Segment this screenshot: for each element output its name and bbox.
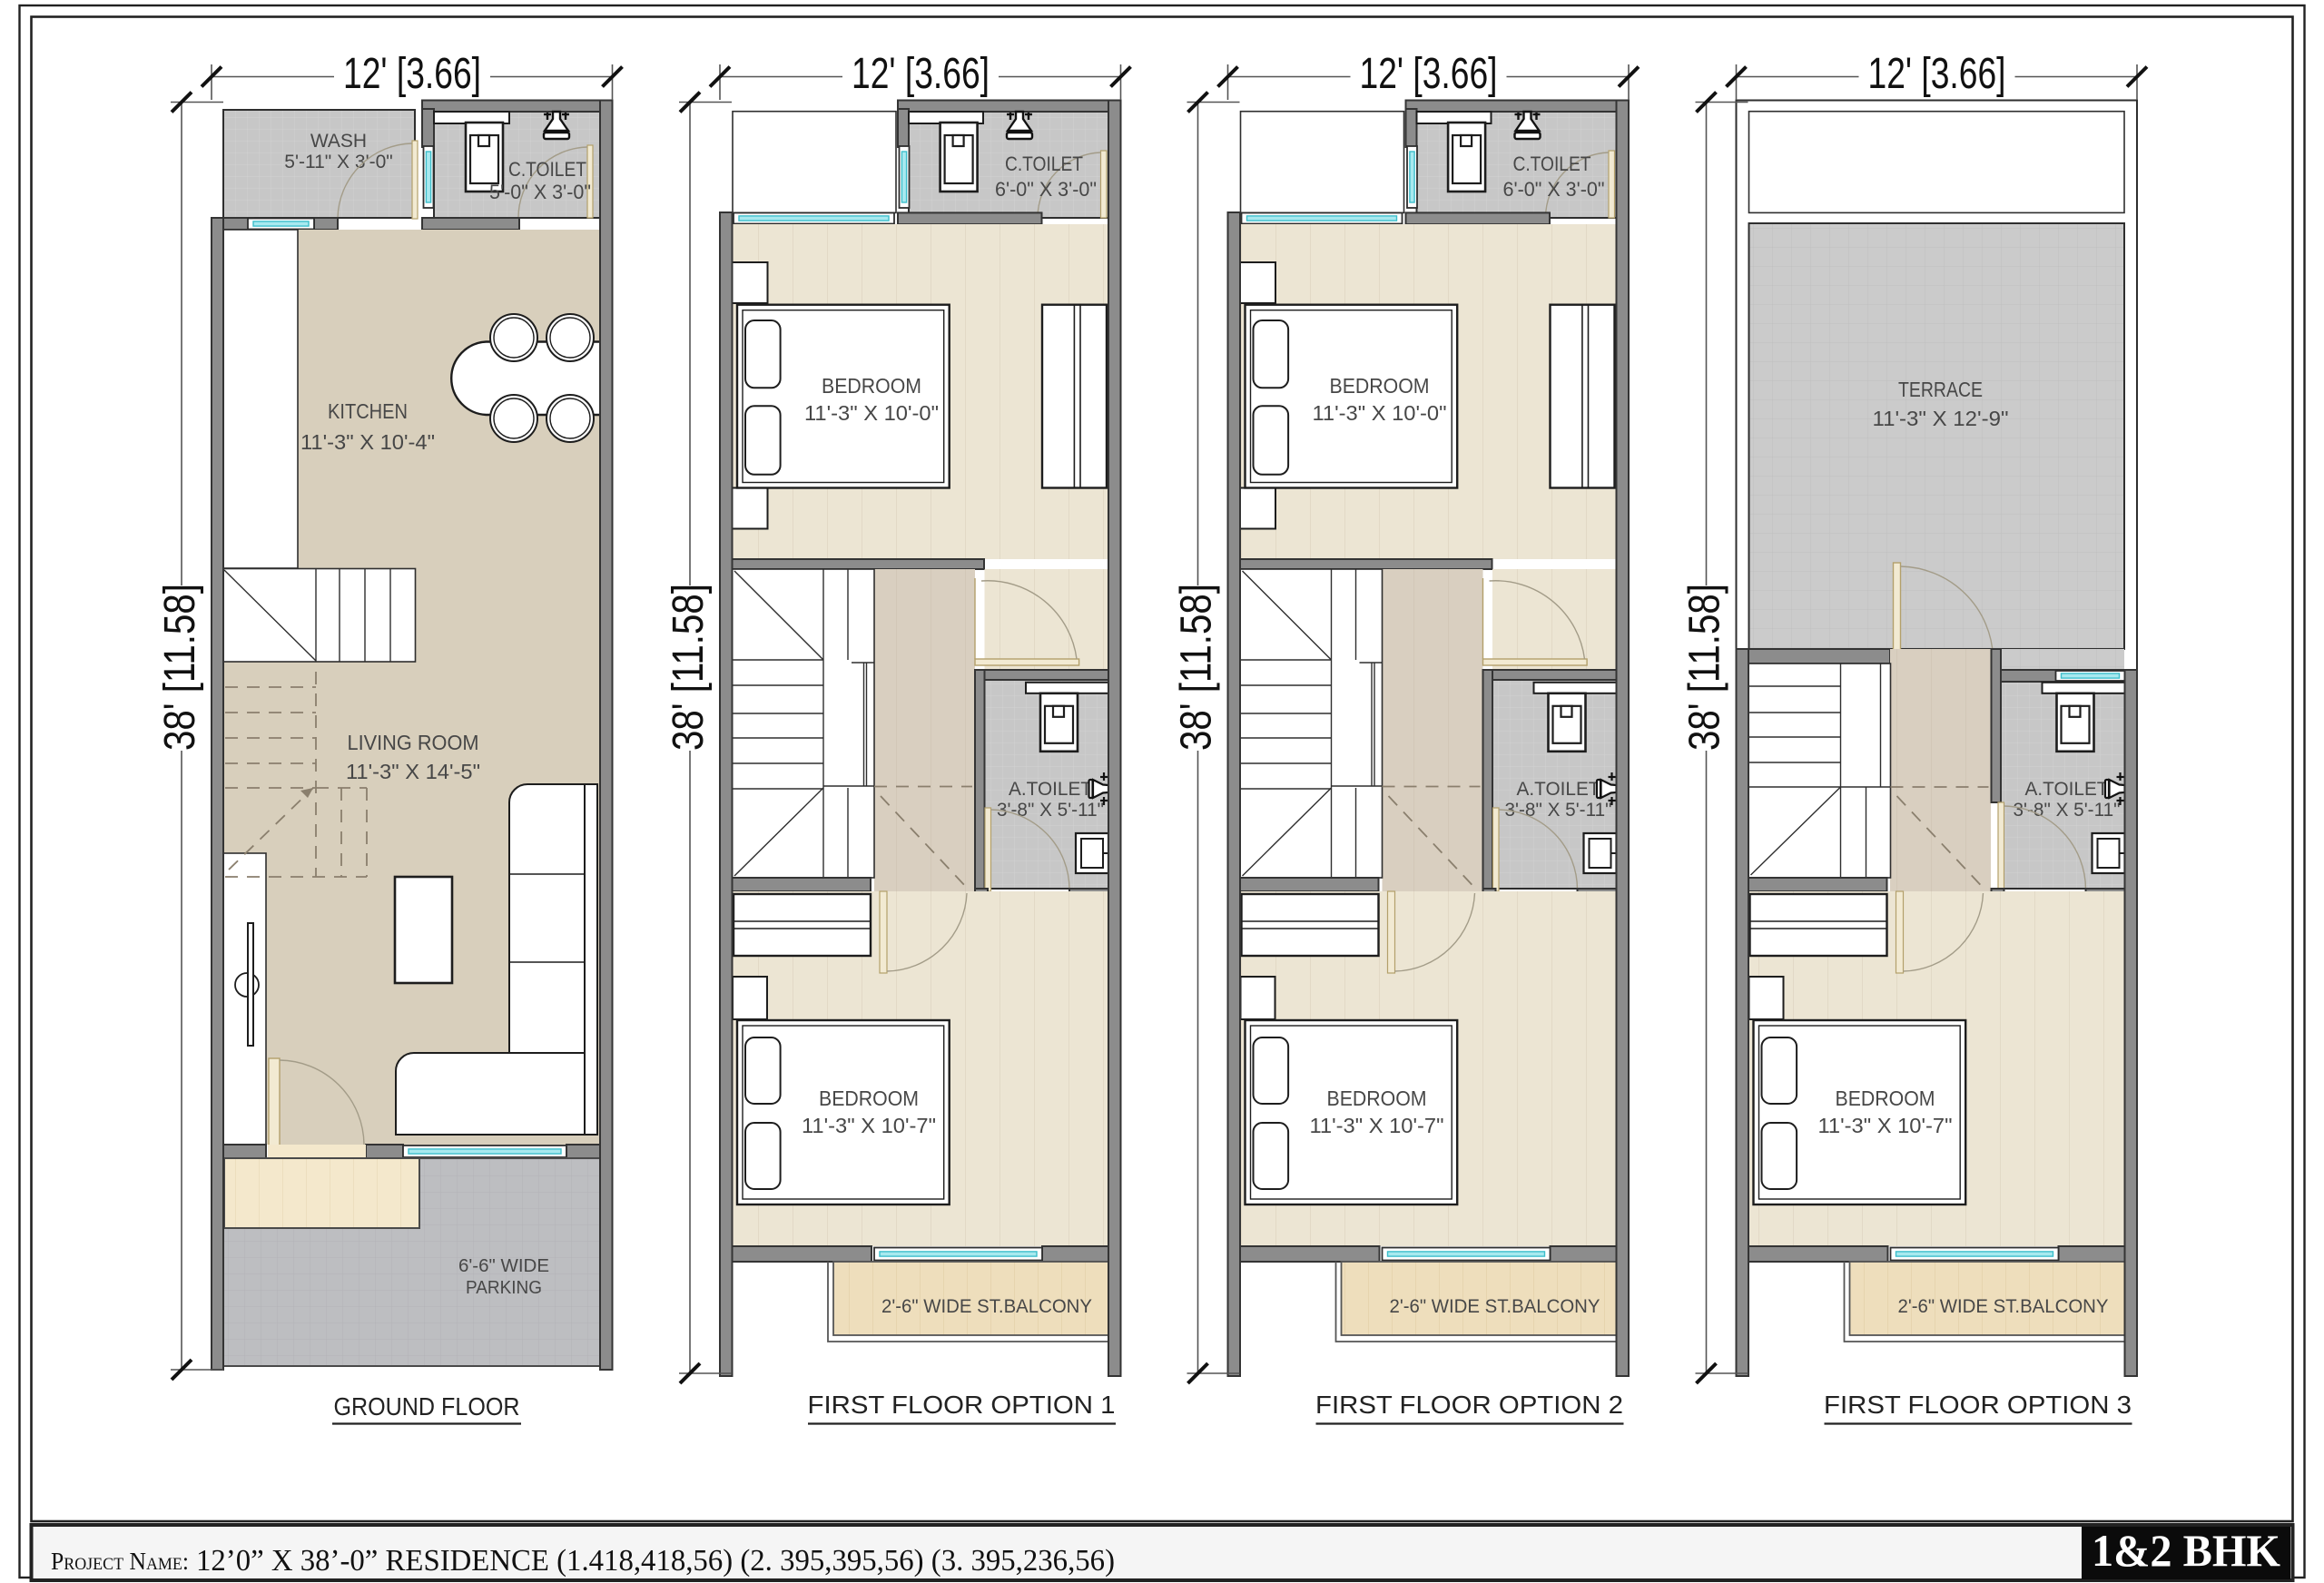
svg-text:11'-3" X 10'-7": 11'-3" X 10'-7"	[1818, 1114, 1953, 1137]
svg-text:Project Name:: Project Name:	[51, 1548, 189, 1575]
svg-text:3'-8" X 5'-11": 3'-8" X 5'-11"	[997, 800, 1104, 821]
svg-text:11'-3" X 10'-0": 11'-3" X 10'-0"	[804, 401, 939, 425]
svg-text:38' [11.58]: 38' [11.58]	[1173, 584, 1221, 751]
svg-text:BEDROOM: BEDROOM	[822, 374, 921, 398]
svg-text:1&2 BHK: 1&2 BHK	[2092, 1525, 2280, 1576]
svg-text:5'-11" X 3'-0": 5'-11" X 3'-0"	[284, 152, 392, 172]
svg-text:TERRACE: TERRACE	[1898, 378, 1983, 401]
svg-text:11'-3" X 10'-0": 11'-3" X 10'-0"	[1313, 401, 1447, 425]
svg-text:BEDROOM: BEDROOM	[1327, 1086, 1427, 1110]
svg-text:12' [3.66]: 12' [3.66]	[852, 50, 990, 98]
svg-text:38' [11.58]: 38' [11.58]	[156, 584, 204, 751]
svg-text:C.TOILET: C.TOILET	[1513, 152, 1591, 175]
svg-text:12' [3.66]: 12' [3.66]	[1868, 50, 2006, 98]
svg-text:38' [11.58]: 38' [11.58]	[665, 584, 713, 751]
svg-text:C.TOILET: C.TOILET	[508, 158, 586, 181]
svg-text:FIRST FLOOR OPTION 1: FIRST FLOOR OPTION 1	[808, 1391, 1116, 1419]
svg-text:FIRST FLOOR OPTION 3: FIRST FLOOR OPTION 3	[1824, 1391, 2132, 1419]
svg-text:5'-0" X 3'-0": 5'-0" X 3'-0"	[489, 181, 591, 203]
svg-text:A.TOILET: A.TOILET	[1009, 779, 1092, 800]
svg-text:BEDROOM: BEDROOM	[1836, 1086, 1935, 1110]
svg-text:FIRST FLOOR OPTION 2: FIRST FLOOR OPTION 2	[1315, 1391, 1623, 1419]
svg-text:LIVING ROOM: LIVING ROOM	[348, 731, 479, 754]
svg-text:A.TOILET: A.TOILET	[2025, 779, 2109, 800]
svg-text:12' [3.66]: 12' [3.66]	[343, 50, 481, 98]
svg-text:11'-3" X 10'-4": 11'-3" X 10'-4"	[300, 430, 435, 454]
svg-text:GROUND FLOOR: GROUND FLOOR	[334, 1392, 520, 1421]
svg-text:2'-6" WIDE ST.BALCONY: 2'-6" WIDE ST.BALCONY	[881, 1295, 1092, 1317]
svg-text:BEDROOM: BEDROOM	[819, 1086, 919, 1110]
svg-text:11'-3" X 10'-7": 11'-3" X 10'-7"	[1310, 1114, 1444, 1137]
svg-text:C.TOILET: C.TOILET	[1005, 152, 1083, 175]
svg-text:6'-6" WIDE: 6'-6" WIDE	[458, 1256, 549, 1276]
svg-text:A.TOILET: A.TOILET	[1517, 779, 1600, 800]
svg-text:2'-6" WIDE ST.BALCONY: 2'-6" WIDE ST.BALCONY	[1390, 1295, 1600, 1317]
svg-text:12’0” X 38’-0” RESIDENCE (1.41: 12’0” X 38’-0” RESIDENCE (1.418,418,56) …	[196, 1544, 1115, 1578]
svg-text:38' [11.58]: 38' [11.58]	[1681, 584, 1729, 751]
svg-text:2'-6" WIDE ST.BALCONY: 2'-6" WIDE ST.BALCONY	[1898, 1295, 2109, 1317]
svg-text:KITCHEN: KITCHEN	[328, 399, 408, 423]
svg-text:PARKING: PARKING	[466, 1278, 542, 1298]
svg-text:6'-0" X 3'-0": 6'-0" X 3'-0"	[995, 178, 1097, 201]
svg-text:WASH: WASH	[310, 131, 367, 152]
svg-text:11'-3" X 12'-9": 11'-3" X 12'-9"	[1873, 407, 2009, 430]
svg-text:11'-3" X 14'-5": 11'-3" X 14'-5"	[346, 760, 480, 783]
svg-text:11'-3" X 10'-7": 11'-3" X 10'-7"	[802, 1114, 936, 1137]
svg-text:3'-8" X 5'-11": 3'-8" X 5'-11"	[1505, 800, 1612, 821]
svg-text:BEDROOM: BEDROOM	[1330, 374, 1430, 398]
svg-text:6'-0" X 3'-0": 6'-0" X 3'-0"	[1503, 178, 1605, 201]
svg-text:12' [3.66]: 12' [3.66]	[1360, 50, 1498, 98]
